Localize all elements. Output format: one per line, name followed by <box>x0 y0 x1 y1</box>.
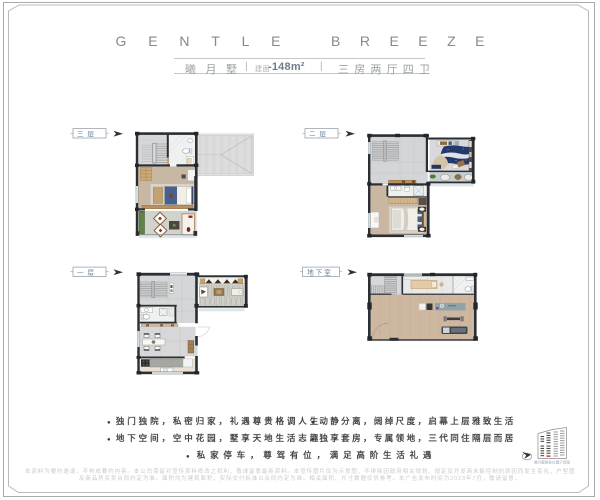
svg-text:一层: 一层 <box>77 269 98 277</box>
svg-text:三层: 三层 <box>77 130 98 138</box>
svg-text:地下室: 地下室 <box>307 268 333 277</box>
svg-text:曦月墅楼栋位置示意图: 曦月墅楼栋位置示意图 <box>534 460 570 465</box>
svg-text:二层: 二层 <box>309 130 330 138</box>
